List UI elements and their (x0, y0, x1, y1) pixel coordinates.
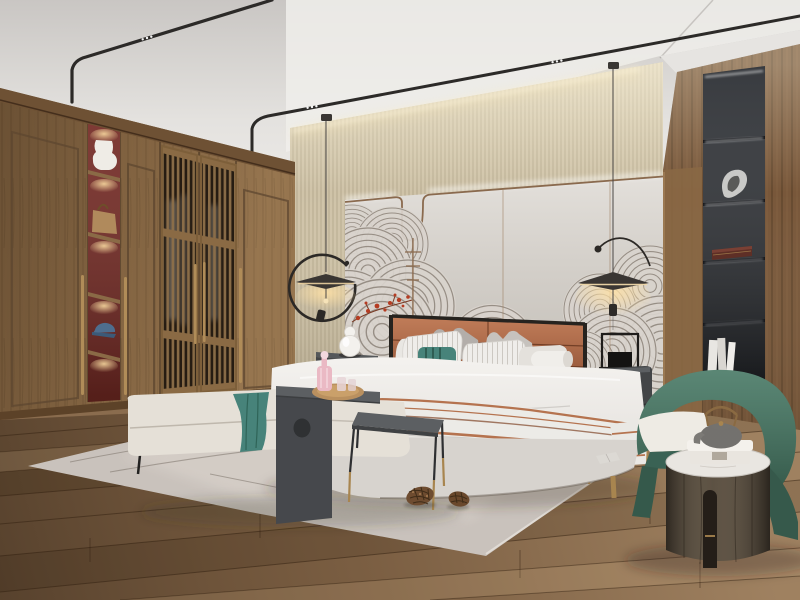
bulb-housing-right (609, 304, 617, 316)
bulb-left (324, 299, 329, 304)
drum-side-table (666, 447, 770, 568)
render-canvas (0, 0, 800, 600)
lattice-slats-right (201, 156, 236, 392)
box-label (712, 452, 727, 460)
canopy-right (608, 62, 619, 69)
bolster-pillow (531, 351, 573, 368)
ring-knob (345, 261, 349, 265)
teapot-knob (719, 421, 724, 426)
lattice-slats-left (162, 146, 197, 397)
canopy-left (321, 114, 332, 121)
arm-ball (595, 246, 602, 253)
bedroom-interior-render (0, 0, 800, 600)
wardrobe-display-column (88, 124, 120, 402)
drum-slot-cutout (703, 490, 717, 568)
c-table-cutout (294, 419, 311, 438)
display-niche (703, 66, 765, 396)
